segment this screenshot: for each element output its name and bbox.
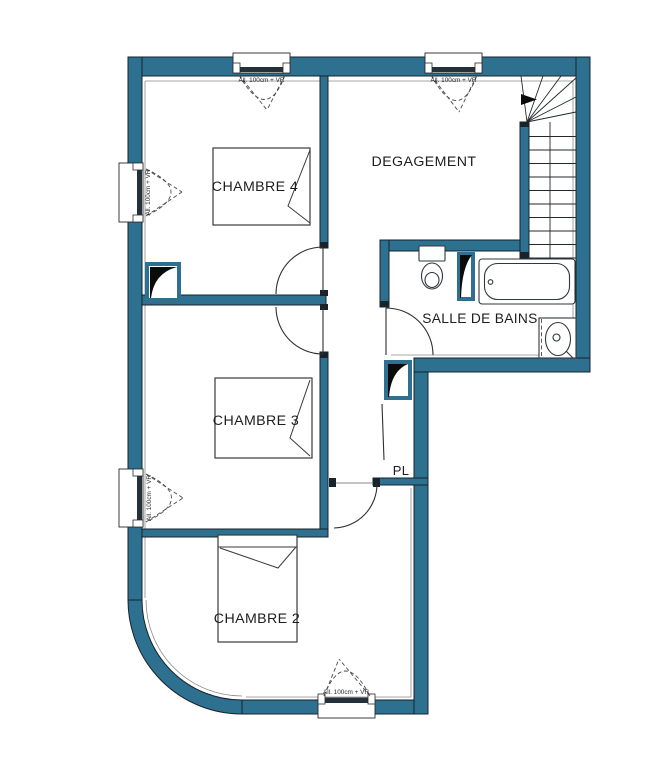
wall-bathroom-west [380, 240, 389, 307]
duct-bathroom [459, 254, 473, 299]
wall-top [128, 57, 590, 76]
duct-chambre [147, 264, 179, 300]
wall-bathroom-north [380, 240, 527, 251]
wall-right [576, 57, 590, 372]
room-label-chambre3: CHAMBRE 3 [213, 413, 299, 429]
room-label-salle-de-bains: SALLE DE BAINS [422, 311, 537, 326]
wall-chambre4-degagement [320, 76, 328, 248]
window-label: All. 100cm + VR [431, 77, 477, 84]
wall-bathroom-south [414, 358, 590, 372]
room-label-chambre2: CHAMBRE 2 [214, 611, 300, 627]
wall-corridor-west [320, 352, 328, 536]
window-label: All. 100cm + VR [323, 689, 369, 696]
window-label: All. 100cm + VR [145, 169, 152, 215]
room-label-degagement: DEGAGEMENT [372, 154, 477, 170]
window-label: All. 100cm + VR [239, 77, 285, 84]
duct-corridor [386, 362, 410, 398]
background [0, 0, 661, 772]
bathtub [479, 259, 575, 304]
washbasin [539, 318, 576, 358]
floor-plan: All. 100cm + VR All. 100cm + VR All. 100… [0, 0, 661, 772]
wall-placard-south [373, 478, 428, 485]
wall-stairwell-west [520, 122, 529, 258]
wall-lower-right [414, 372, 428, 714]
room-label-chambre4: CHAMBRE 4 [212, 179, 298, 195]
room-label-placard: PL [393, 463, 410, 478]
window-label: All. 100cm + VR [146, 475, 153, 521]
